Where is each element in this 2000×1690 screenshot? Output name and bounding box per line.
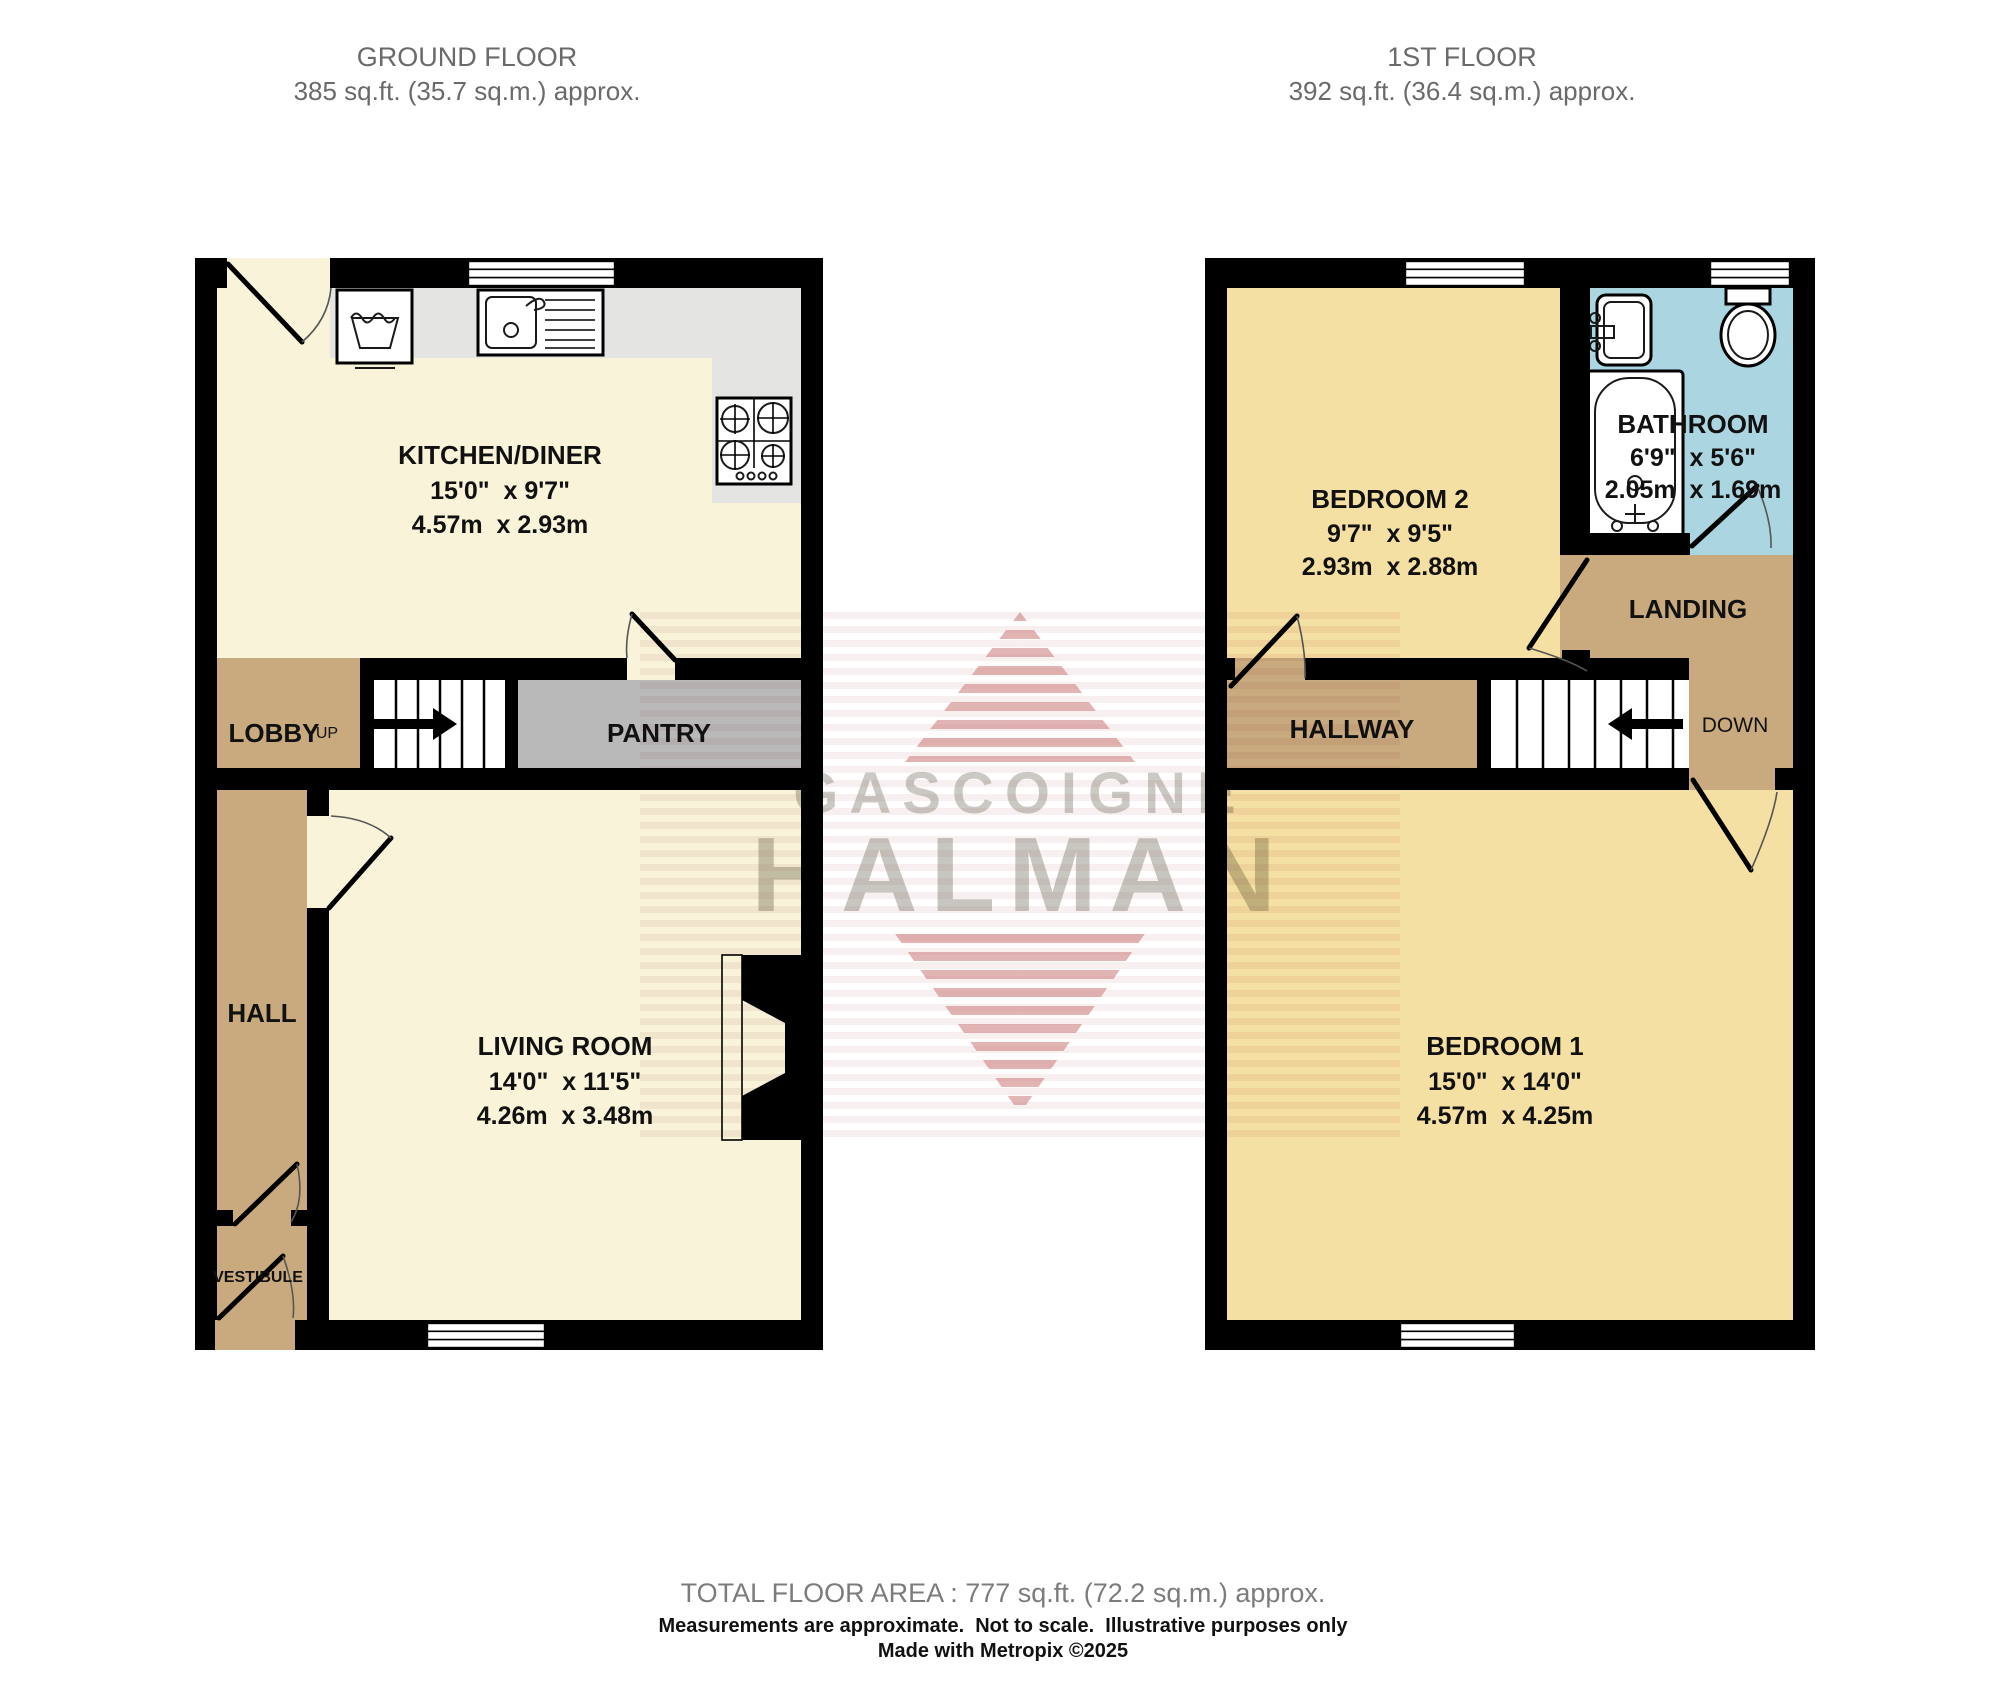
hallway-label: HALLWAY xyxy=(1290,714,1415,744)
bedroom2-window xyxy=(1405,261,1525,286)
wall-bedroom2-bathroom xyxy=(1560,288,1590,555)
hob-icon xyxy=(717,398,791,484)
first-floor-plan: BEDROOM 2 9'7" x 9'5" 2.93m x 2.88m BATH… xyxy=(1205,258,1815,1350)
lobby-label: LOBBY xyxy=(229,718,320,748)
wall-stairs-pantry xyxy=(505,680,518,768)
wall-stub-bedroom1 xyxy=(1775,768,1793,790)
wall-stairs-left xyxy=(1477,680,1491,768)
bathroom-window xyxy=(1710,261,1790,286)
toilet-icon xyxy=(1721,288,1775,366)
bedroom1-dim-imperial: 15'0" x 14'0" xyxy=(1428,1068,1582,1096)
wall-left xyxy=(1205,258,1227,1350)
kitchen-window xyxy=(468,261,615,286)
footer-notes: Measurements are approximate. Not to sca… xyxy=(658,1614,1347,1664)
living-room-dim-metric: 4.26m x 3.48m xyxy=(477,1102,654,1130)
watermark-triangle-bottom-icon xyxy=(895,934,1145,1114)
stairs-up-label: UP xyxy=(316,725,338,742)
wall-right xyxy=(1793,258,1815,1350)
footer-credit: Made with Metropix ©2025 xyxy=(658,1639,1347,1664)
first-floor-title: 1ST FLOOR xyxy=(1289,40,1636,75)
watermark-triangle-icon xyxy=(905,612,1135,762)
first-floor-area: 392 sq.ft. (36.4 sq.m.) approx. xyxy=(1289,75,1636,109)
watermark-brand-line1: GASCOIGNE xyxy=(793,764,1247,825)
wall-hallway-bedroom1 xyxy=(1227,768,1689,790)
stairs-up xyxy=(373,680,505,768)
wall-middle xyxy=(217,768,801,790)
wall-left xyxy=(195,258,217,1350)
bedroom1-window xyxy=(1400,1323,1515,1348)
wall-bathroom-bottom xyxy=(1560,533,1690,555)
bathroom-dim-metric: 2.05m x 1.69m xyxy=(1605,476,1782,504)
ground-floor-header: GROUND FLOOR 385 sq.ft. (35.7 sq.m.) app… xyxy=(294,40,641,109)
vestibule-label: VESTIBULE xyxy=(213,1269,303,1286)
hall-vestibule-floor xyxy=(217,790,307,1320)
lobby-floor xyxy=(217,658,360,770)
ground-floor-title: GROUND FLOOR xyxy=(294,40,641,75)
washing-machine-icon xyxy=(337,290,412,368)
bedroom2-dim-imperial: 9'7" x 9'5" xyxy=(1327,520,1453,548)
bedroom1-dim-metric: 4.57m x 4.25m xyxy=(1417,1102,1594,1130)
hall-label: HALL xyxy=(227,998,296,1028)
wall-stairs-left xyxy=(360,680,374,768)
kitchen-dim-metric: 4.57m x 2.93m xyxy=(412,511,589,539)
ground-floor-area: 385 sq.ft. (35.7 sq.m.) approx. xyxy=(294,75,641,109)
bedroom2-floor xyxy=(1227,288,1560,660)
stairs-down xyxy=(1491,680,1689,768)
fireplace-hearth xyxy=(722,955,742,1140)
stairs-down-label: DOWN xyxy=(1702,714,1769,737)
living-room-window xyxy=(427,1323,545,1348)
bedroom2-dim-metric: 2.93m x 2.88m xyxy=(1302,553,1479,581)
ground-floor-plan: KITCHEN/DINER 15'0" x 9'7" 4.57m x 2.93m… xyxy=(195,258,823,1350)
bathroom-basin-icon xyxy=(1590,295,1651,365)
kitchen-label: KITCHEN/DINER xyxy=(398,440,602,470)
landing-label: LANDING xyxy=(1629,594,1747,624)
bedroom1-label: BEDROOM 1 xyxy=(1426,1031,1583,1061)
kitchen-dim-imperial: 15'0" x 9'7" xyxy=(430,477,570,505)
living-room-label: LIVING ROOM xyxy=(478,1031,653,1061)
kitchen-sink-icon xyxy=(478,290,603,355)
total-floor-area: TOTAL FLOOR AREA : 777 sq.ft. (72.2 sq.m… xyxy=(681,1578,1326,1609)
bathroom-label: BATHROOM xyxy=(1617,409,1768,439)
footer-disclaimer: Measurements are approximate. Not to sca… xyxy=(658,1614,1347,1639)
living-room-dim-imperial: 14'0" x 11'5" xyxy=(489,1068,641,1096)
wall-stub-vestibule-left xyxy=(217,1210,233,1226)
bedroom2-label: BEDROOM 2 xyxy=(1311,484,1468,514)
wall-kitchen-stairs xyxy=(360,658,801,680)
bathroom-dim-imperial: 6'9" x 5'6" xyxy=(1630,444,1756,472)
first-floor-header: 1ST FLOOR 392 sq.ft. (36.4 sq.m.) approx… xyxy=(1289,40,1636,109)
pantry-label: PANTRY xyxy=(607,718,711,748)
wall-right xyxy=(801,258,823,1350)
